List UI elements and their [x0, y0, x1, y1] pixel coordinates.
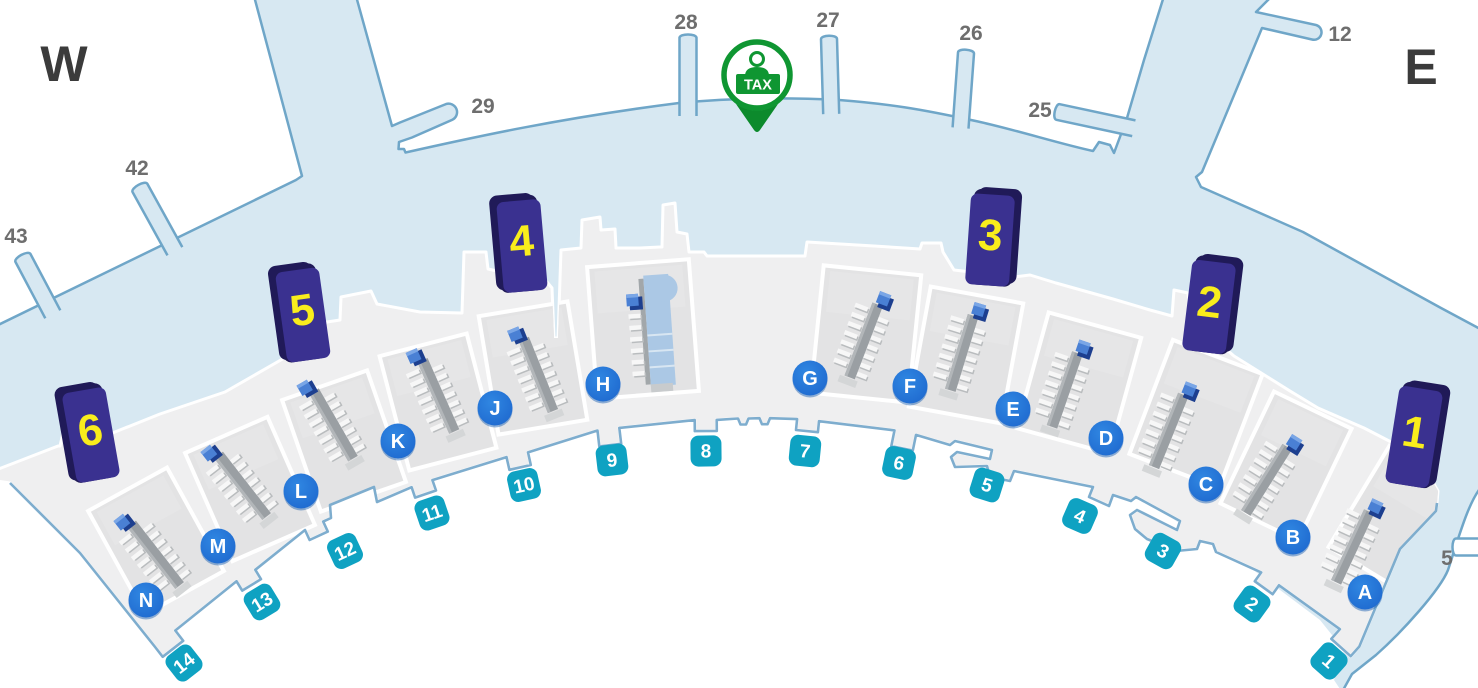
svg-text:M: M [210, 536, 227, 558]
svg-text:A: A [1358, 582, 1372, 604]
svg-text:C: C [1199, 474, 1213, 496]
svg-text:25: 25 [1028, 99, 1052, 122]
svg-text:43: 43 [4, 225, 27, 248]
svg-text:F: F [904, 376, 916, 398]
svg-text:E: E [1404, 39, 1437, 95]
svg-text:5: 5 [1441, 547, 1453, 570]
svg-text:27: 27 [816, 9, 839, 32]
svg-text:E: E [1006, 399, 1019, 421]
svg-text:10: 10 [512, 473, 537, 498]
svg-text:28: 28 [674, 11, 698, 34]
svg-text:4: 4 [507, 216, 536, 267]
svg-text:26: 26 [959, 22, 982, 45]
svg-text:H: H [596, 374, 610, 396]
svg-text:29: 29 [471, 95, 494, 118]
svg-text:TAX: TAX [744, 78, 772, 94]
svg-text:8: 8 [701, 441, 712, 462]
svg-text:G: G [802, 368, 818, 390]
svg-text:7: 7 [799, 441, 812, 463]
svg-text:J: J [489, 398, 500, 420]
svg-text:3: 3 [976, 210, 1004, 261]
svg-text:K: K [391, 431, 406, 453]
svg-text:W: W [40, 36, 88, 92]
svg-text:L: L [295, 481, 307, 503]
svg-text:N: N [139, 590, 153, 612]
svg-text:B: B [1286, 527, 1300, 549]
svg-text:12: 12 [1328, 23, 1351, 46]
svg-text:42: 42 [125, 157, 148, 180]
svg-text:D: D [1099, 428, 1113, 450]
